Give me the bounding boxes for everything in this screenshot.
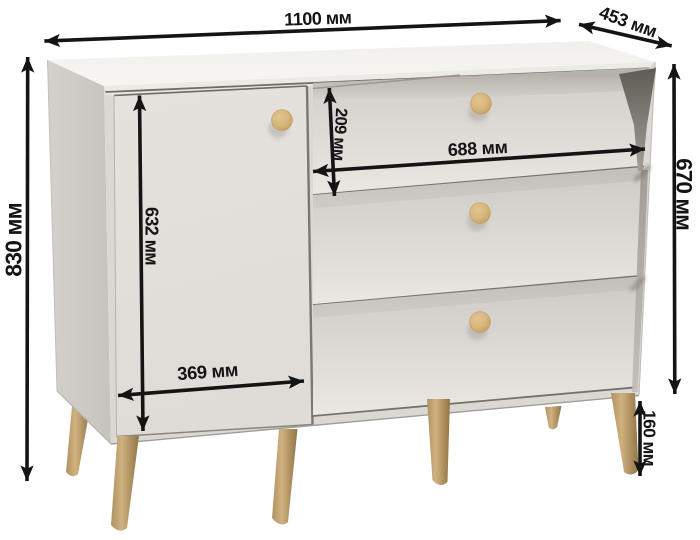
svg-text:688 мм: 688 мм <box>447 137 508 160</box>
svg-text:209 мм: 209 мм <box>329 108 350 162</box>
svg-text:830 мм: 830 мм <box>0 203 26 276</box>
svg-text:670 мм: 670 мм <box>672 158 697 230</box>
svg-text:1100 мм: 1100 мм <box>284 7 352 29</box>
svg-text:160 мм: 160 мм <box>640 410 660 466</box>
svg-text:632 мм: 632 мм <box>142 207 162 265</box>
svg-text:369 мм: 369 мм <box>176 359 238 384</box>
